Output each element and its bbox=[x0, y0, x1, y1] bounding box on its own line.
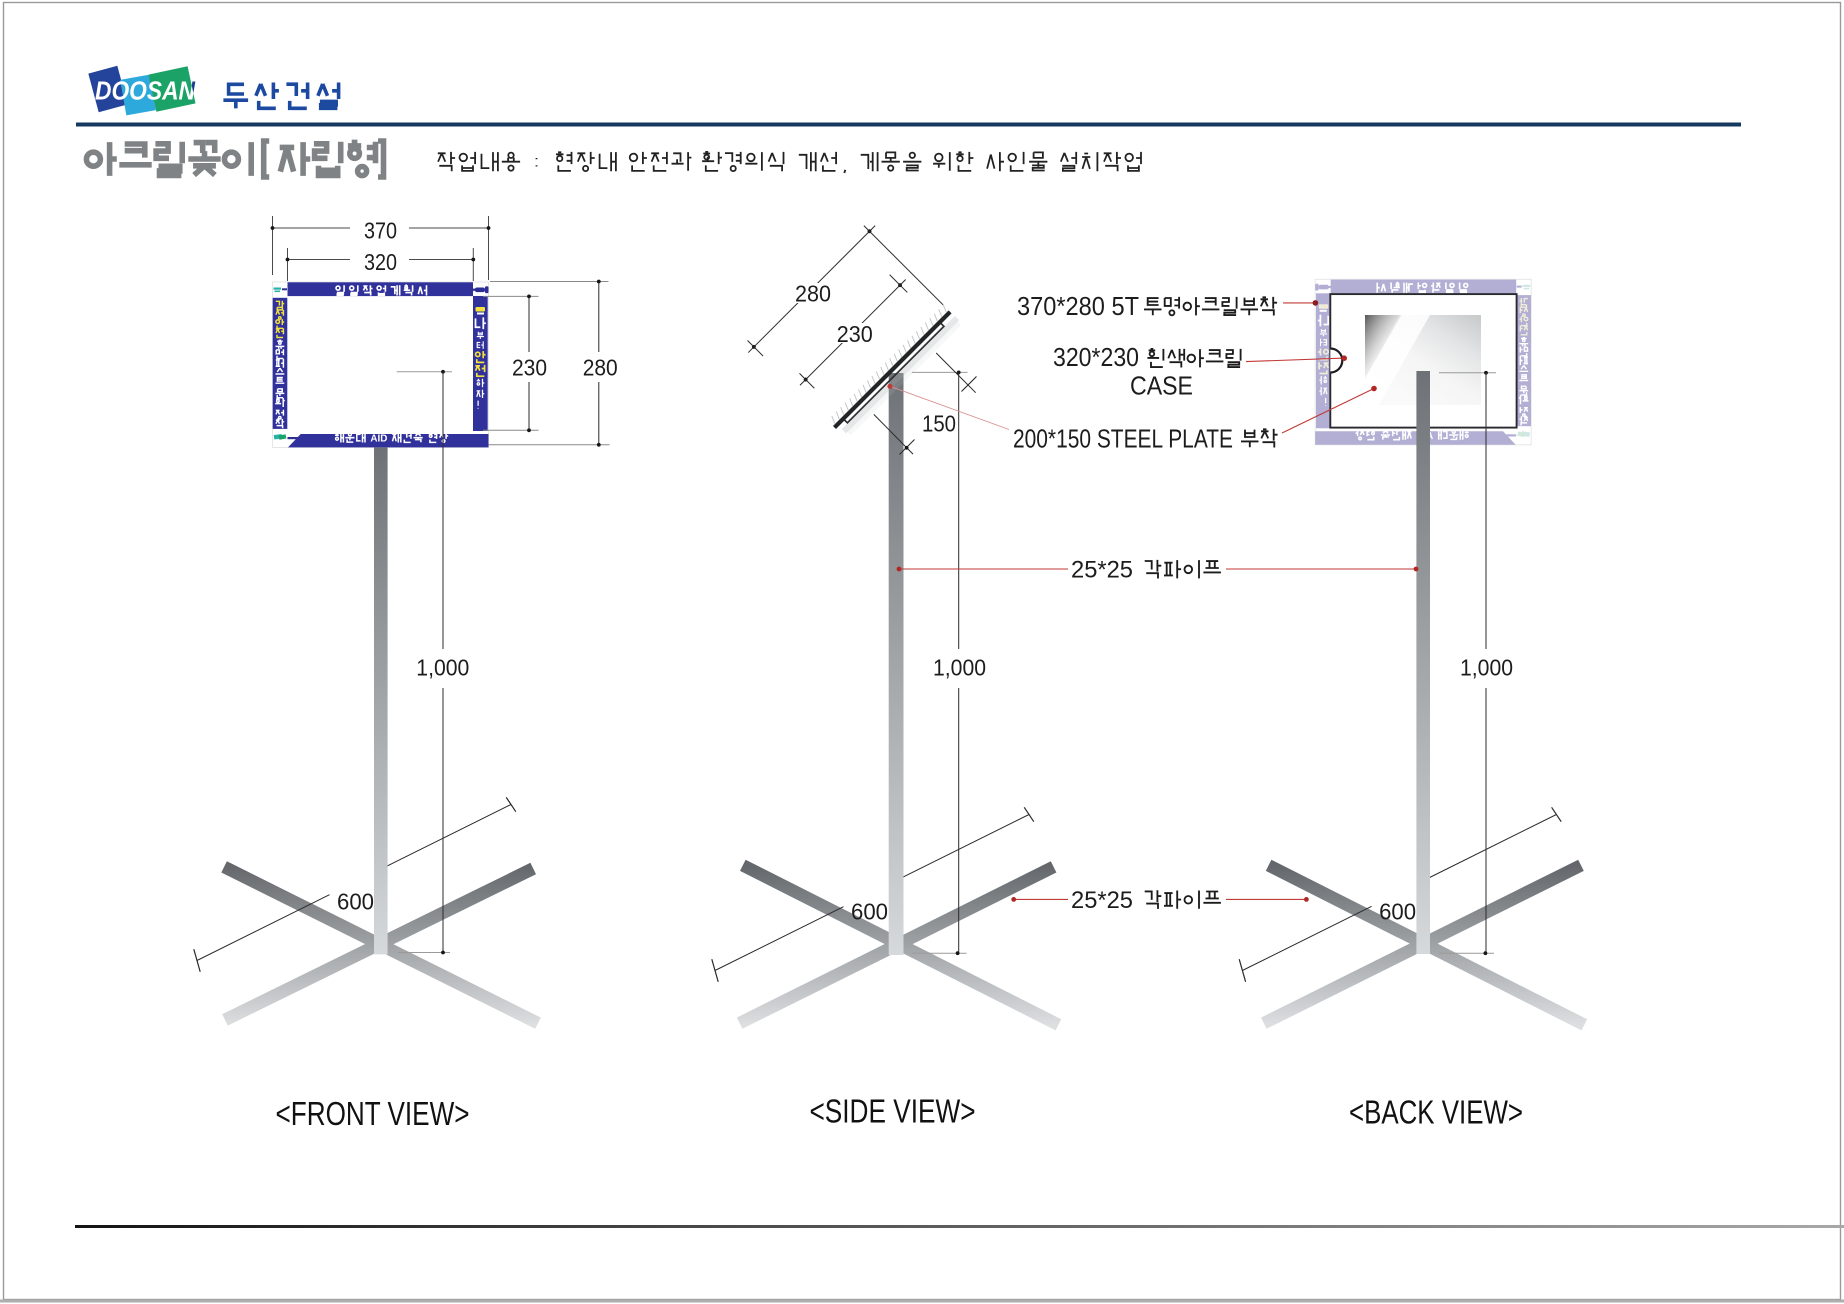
svg-text:AID: AID bbox=[370, 433, 387, 445]
svg-text:CASE: CASE bbox=[1130, 371, 1193, 401]
svg-text:370*280 5T: 370*280 5T bbox=[1017, 291, 1139, 321]
svg-text:150: 150 bbox=[922, 410, 956, 436]
svg-text:1,000: 1,000 bbox=[933, 654, 986, 680]
svg-text:1,000: 1,000 bbox=[1460, 654, 1513, 680]
svg-text:1,000: 1,000 bbox=[416, 654, 469, 680]
svg-text:370: 370 bbox=[364, 217, 397, 243]
svg-text:230: 230 bbox=[837, 321, 873, 347]
svg-text:280: 280 bbox=[583, 355, 618, 381]
svg-text:600: 600 bbox=[851, 899, 888, 925]
svg-text:<FRONT VIEW>: <FRONT VIEW> bbox=[276, 1096, 470, 1133]
svg-text:600: 600 bbox=[1379, 899, 1416, 925]
svg-text:25*25: 25*25 bbox=[1071, 887, 1133, 914]
svg-text:320*230: 320*230 bbox=[1053, 342, 1139, 372]
svg-text:<SIDE VIEW>: <SIDE VIEW> bbox=[810, 1094, 976, 1131]
svg-text:200*150 STEEL PLATE: 200*150 STEEL PLATE bbox=[1013, 424, 1233, 454]
svg-text:DOOSAN: DOOSAN bbox=[95, 76, 196, 106]
svg-text:230: 230 bbox=[512, 355, 547, 381]
svg-text:600: 600 bbox=[337, 889, 374, 915]
svg-text:25*25: 25*25 bbox=[1071, 557, 1133, 584]
svg-text:280: 280 bbox=[795, 280, 831, 306]
svg-text:320: 320 bbox=[364, 249, 397, 275]
svg-text:<BACK VIEW>: <BACK VIEW> bbox=[1349, 1095, 1523, 1132]
